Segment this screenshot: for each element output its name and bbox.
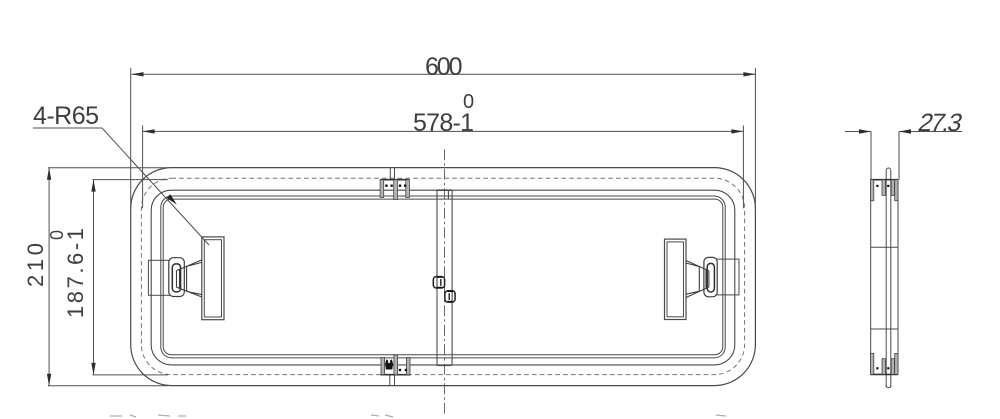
svg-text:4-R65: 4-R65 bbox=[33, 102, 99, 130]
svg-text:0: 0 bbox=[463, 91, 474, 113]
svg-text:0: 0 bbox=[47, 230, 67, 240]
svg-text:578-1: 578-1 bbox=[413, 109, 474, 137]
svg-text:600: 600 bbox=[425, 53, 463, 81]
svg-text:27.3: 27.3 bbox=[916, 109, 966, 137]
svg-text:210: 210 bbox=[23, 243, 48, 287]
